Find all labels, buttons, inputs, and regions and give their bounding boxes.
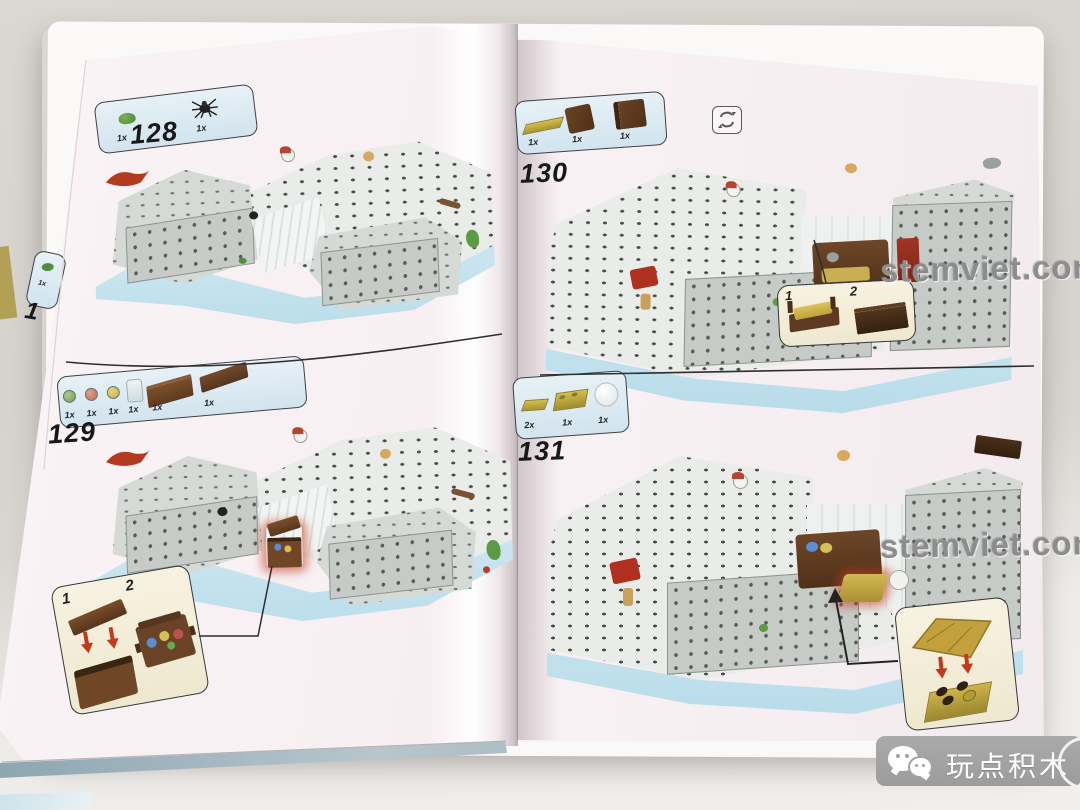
clear-bottle-icon xyxy=(126,378,144,402)
step-129-subassembly-callout: 1 2 xyxy=(50,564,210,716)
bed-post xyxy=(787,301,793,313)
red-bird-figure xyxy=(103,165,152,191)
wechat-account-badge: 玩点积木 xyxy=(876,736,1080,786)
highlighted-open-chest xyxy=(266,525,303,568)
step-128-model-image xyxy=(89,133,501,347)
object-at-left-edge xyxy=(0,246,17,320)
yellow-plate-small-icon xyxy=(521,399,549,412)
part-count: 1x xyxy=(37,280,46,288)
tan-minifigure xyxy=(640,294,650,310)
wechat-account-name: 玩点积木 xyxy=(946,745,1070,785)
rotate-model-icon xyxy=(712,106,742,134)
part-count: 1x xyxy=(528,137,539,148)
part-count: 1x xyxy=(152,402,163,413)
red-arrows-down xyxy=(930,653,981,686)
yellow-plate-art xyxy=(924,681,992,723)
part-count: 1x xyxy=(204,397,215,408)
bottom-left-page-corner xyxy=(0,791,92,810)
chest-lid-icon xyxy=(199,362,248,394)
part-count: 2x xyxy=(524,420,535,431)
white-dome-icon xyxy=(594,382,620,408)
figure-tan-cat xyxy=(845,163,857,173)
photo-of-lego-instruction-book: 1x 1 1x 1x 128 xyxy=(0,0,1080,810)
red-gem-icon xyxy=(84,387,98,401)
part-count: 1x xyxy=(128,404,139,415)
dark-brown-slab xyxy=(974,435,1022,459)
part-count: 1x xyxy=(572,134,583,145)
part-count: 1x xyxy=(108,406,119,417)
figure-white-red xyxy=(281,148,295,162)
tan-minifigure xyxy=(623,588,633,606)
green-gem-icon xyxy=(62,389,76,403)
yellow-gem-icon xyxy=(106,385,120,399)
figure-white-red xyxy=(293,429,307,443)
green-piece xyxy=(759,624,768,632)
red-bird-figure xyxy=(104,445,153,470)
filled-chest-art xyxy=(135,613,197,668)
callout-step-number: 2 xyxy=(124,577,135,595)
closed-lid-art xyxy=(854,302,909,335)
figure-white-red xyxy=(733,474,748,489)
part-count: 1x xyxy=(598,414,609,425)
tan-plate-icon xyxy=(522,116,564,135)
brown-panel-icon xyxy=(564,103,595,134)
spider-part-icon xyxy=(187,94,224,122)
green-piece-icon xyxy=(42,263,54,272)
callout-step-number: 2 xyxy=(849,283,857,298)
part-count: 1x xyxy=(196,122,207,133)
green-plant xyxy=(486,540,501,560)
bed-post xyxy=(830,297,836,309)
watermark-text: stemviet.com xyxy=(880,524,1080,566)
spine-page-curl xyxy=(428,24,518,746)
watermark-text: stemviet.com xyxy=(880,248,1080,290)
gray-cat-figure xyxy=(982,156,1001,170)
part-count: 1x xyxy=(620,130,631,141)
wechat-icon xyxy=(888,744,940,780)
callout-step-number: 1 xyxy=(60,590,71,608)
part-count: 1x xyxy=(116,132,127,143)
step-131-subassembly-callout xyxy=(894,596,1020,731)
part-count: 1x xyxy=(562,417,573,428)
yellow-plate-2x2-icon xyxy=(553,389,589,412)
figure-tan-cat xyxy=(837,450,850,461)
green-plant xyxy=(466,230,480,248)
highlighted-tan-basket xyxy=(838,574,889,602)
white-cat-figure xyxy=(889,570,909,590)
brown-panel-icon xyxy=(613,98,647,130)
prev-step-number: 1 xyxy=(23,297,42,327)
chest-base-art xyxy=(74,655,139,710)
